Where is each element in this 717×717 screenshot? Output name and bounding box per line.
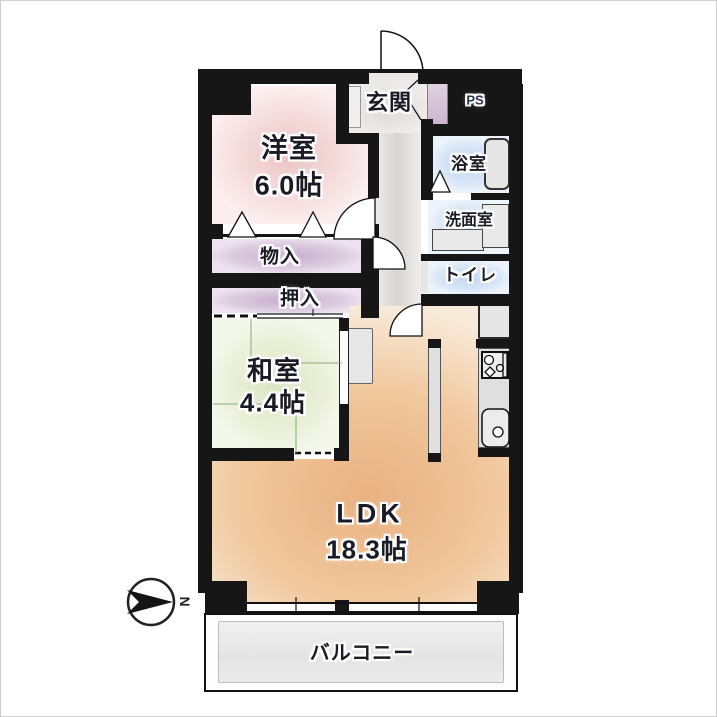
entrance-doorway-floor: [369, 73, 418, 84]
japanese-room-size: 4.4帖: [240, 383, 306, 420]
wall-pillar-southwest: [205, 581, 247, 614]
toilet-doorway-floor: [421, 261, 428, 293]
wall-storage-threshold: [223, 234, 336, 237]
compass-icon: [127, 579, 174, 625]
wall-kitchen-divider: [476, 339, 523, 348]
wall-left: [198, 84, 212, 593]
wall-entrance-lintel: [369, 69, 418, 73]
vanity-sink-icon: [432, 229, 484, 251]
wall-partition-cap-top: [428, 339, 441, 348]
ldk-size: 18.3帖: [326, 530, 408, 567]
storage-label: 物入: [260, 242, 300, 269]
refrigerator-space: [478, 301, 511, 339]
entrance-door-swing: [381, 31, 423, 73]
wall-toilet-south: [421, 294, 522, 306]
entrance-label: 玄関: [366, 85, 412, 117]
pipe-space-label: PS: [466, 93, 483, 108]
closet-label: 押入: [280, 284, 320, 311]
wall-washitsu-ne-stub: [339, 318, 349, 331]
western-room-size: 6.0帖: [255, 164, 324, 203]
wall-entrance-south: [336, 133, 379, 144]
washroom-label: 洗面室: [445, 206, 493, 230]
shoe-cabinet: [347, 86, 361, 128]
compass-north-label: N: [177, 596, 193, 607]
wall-bath-south-b: [471, 193, 522, 200]
wall-partition-cap-bottom: [428, 453, 441, 462]
wall-entrance-west: [336, 69, 349, 133]
wall-washitsu-south-a: [198, 448, 294, 461]
stove-icon: [481, 351, 509, 379]
wall-pillar-southeast: [477, 581, 519, 614]
bathroom-label: 浴室: [451, 150, 487, 175]
balcony-label: バルコニー: [310, 637, 415, 666]
wall-bath-south-a: [421, 193, 433, 200]
window-rail-outer: [247, 602, 477, 604]
toilet-label: トイレ: [443, 261, 497, 286]
wall-washitsu-south-b: [334, 448, 349, 461]
wall-closet-east: [361, 239, 379, 318]
floor-plan: 玄関 PS 洋室 6.0帖 浴室 洗面室 トイレ 物入 押入 和室 4.4帖 L…: [0, 0, 717, 717]
corridor-floor: [373, 133, 421, 306]
wall-kitchen-cap: [478, 448, 523, 457]
wall-storage-north-b: [336, 224, 379, 239]
wall-storage-north-a: [198, 224, 223, 239]
wall-bath-north: [421, 124, 522, 136]
western-room-label: 洋室: [261, 127, 317, 166]
kitchen-partition: [428, 348, 441, 453]
wall-corridor-west: [368, 144, 379, 198]
bathtub-icon: [484, 138, 510, 190]
sliding-door-track: [339, 331, 349, 404]
ldk-label: LDK: [336, 499, 404, 530]
window-rail-inner: [247, 611, 477, 613]
